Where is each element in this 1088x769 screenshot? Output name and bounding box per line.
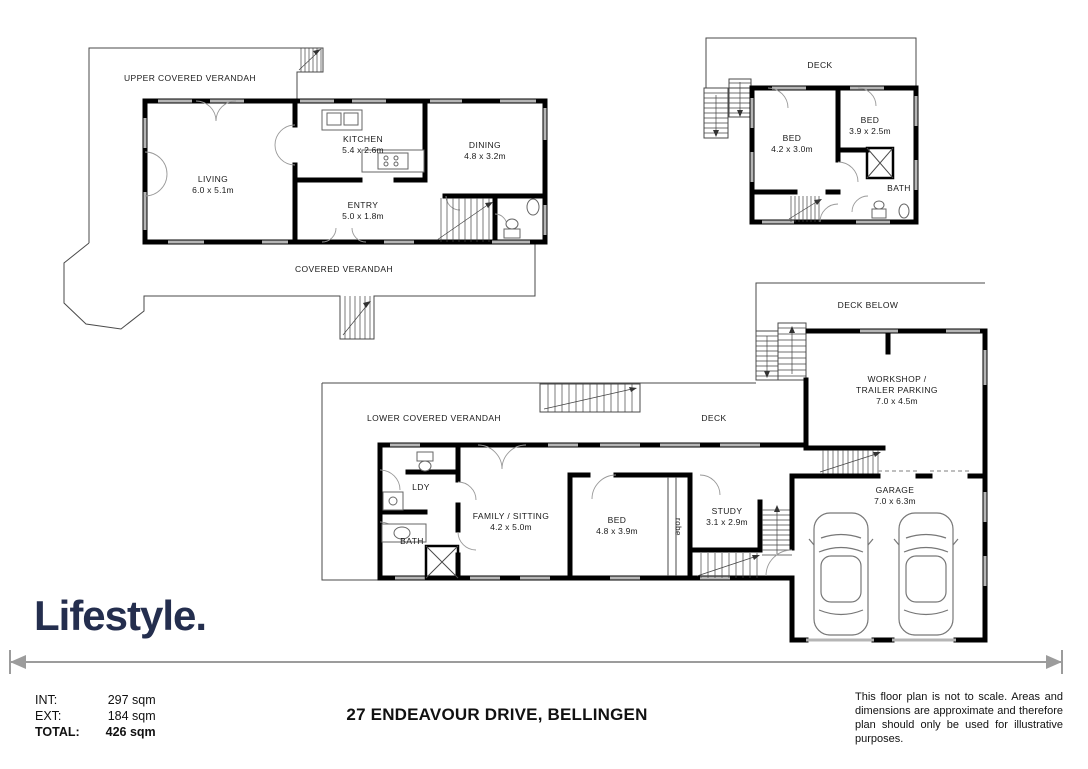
upper-plan (64, 48, 545, 339)
living-label: LIVING6.0 x 5.1m (192, 174, 234, 196)
upper-verandah-label: UPPER COVERED VERANDAH (124, 73, 256, 84)
ext-label: EXT: (35, 708, 80, 724)
study-label: STUDY3.1 x 2.9m (706, 506, 748, 528)
lower-deck-label: DECK (701, 413, 726, 424)
dining-label: DINING4.8 x 3.2m (464, 140, 506, 162)
robe-label: robe (674, 518, 683, 536)
total-value: 426 sqm (80, 724, 156, 740)
family-label: FAMILY / SITTING4.2 x 5.0m (473, 511, 549, 533)
car-2 (894, 513, 958, 635)
disclaimer-text: This floor plan is not to scale. Areas a… (855, 690, 1063, 746)
lower-bed-label: BED4.8 x 3.9m (596, 515, 638, 537)
car-1 (809, 513, 873, 635)
dimension-line (10, 650, 1062, 674)
floorplan-page: UPPER COVERED VERANDAH LIVING6.0 x 5.1m … (0, 0, 1088, 769)
garage-label: GARAGE7.0 x 6.3m (874, 485, 916, 507)
workshop-label: WORKSHOP /TRAILER PARKING7.0 x 4.5m (856, 374, 938, 407)
area-row-ext: EXT: 184 sqm (35, 708, 156, 724)
total-label: TOTAL: (35, 724, 80, 740)
lower-plan (322, 283, 985, 640)
deck-below-label: DECK BELOW (838, 300, 899, 311)
bed2-label: BED3.9 x 2.5m (849, 115, 891, 137)
area-summary: INT: 297 sqm EXT: 184 sqm TOTAL: 426 sqm (35, 692, 156, 740)
ext-value: 184 sqm (80, 708, 156, 724)
ldy-label: LDY (412, 482, 430, 493)
bed1-label: BED4.2 x 3.0m (771, 133, 813, 155)
area-row-int: INT: 297 sqm (35, 692, 156, 708)
int-label: INT: (35, 692, 80, 708)
lower-verandah-label: LOWER COVERED VERANDAH (367, 413, 501, 424)
int-value: 297 sqm (80, 692, 156, 708)
deck-label: DECK (807, 60, 832, 71)
area-row-total: TOTAL: 426 sqm (35, 724, 156, 740)
brand-logo: Lifestyle. (34, 592, 206, 640)
covered-verandah-label: COVERED VERANDAH (295, 264, 393, 275)
bath-label: BATH (887, 183, 911, 194)
entry-label: ENTRY5.0 x 1.8m (342, 200, 384, 222)
property-address: 27 ENDEAVOUR DRIVE, BELLINGEN (346, 705, 647, 725)
kitchen-label: KITCHEN5.4 x 2.6m (342, 134, 384, 156)
lower-bath-label: BATH (400, 536, 424, 547)
